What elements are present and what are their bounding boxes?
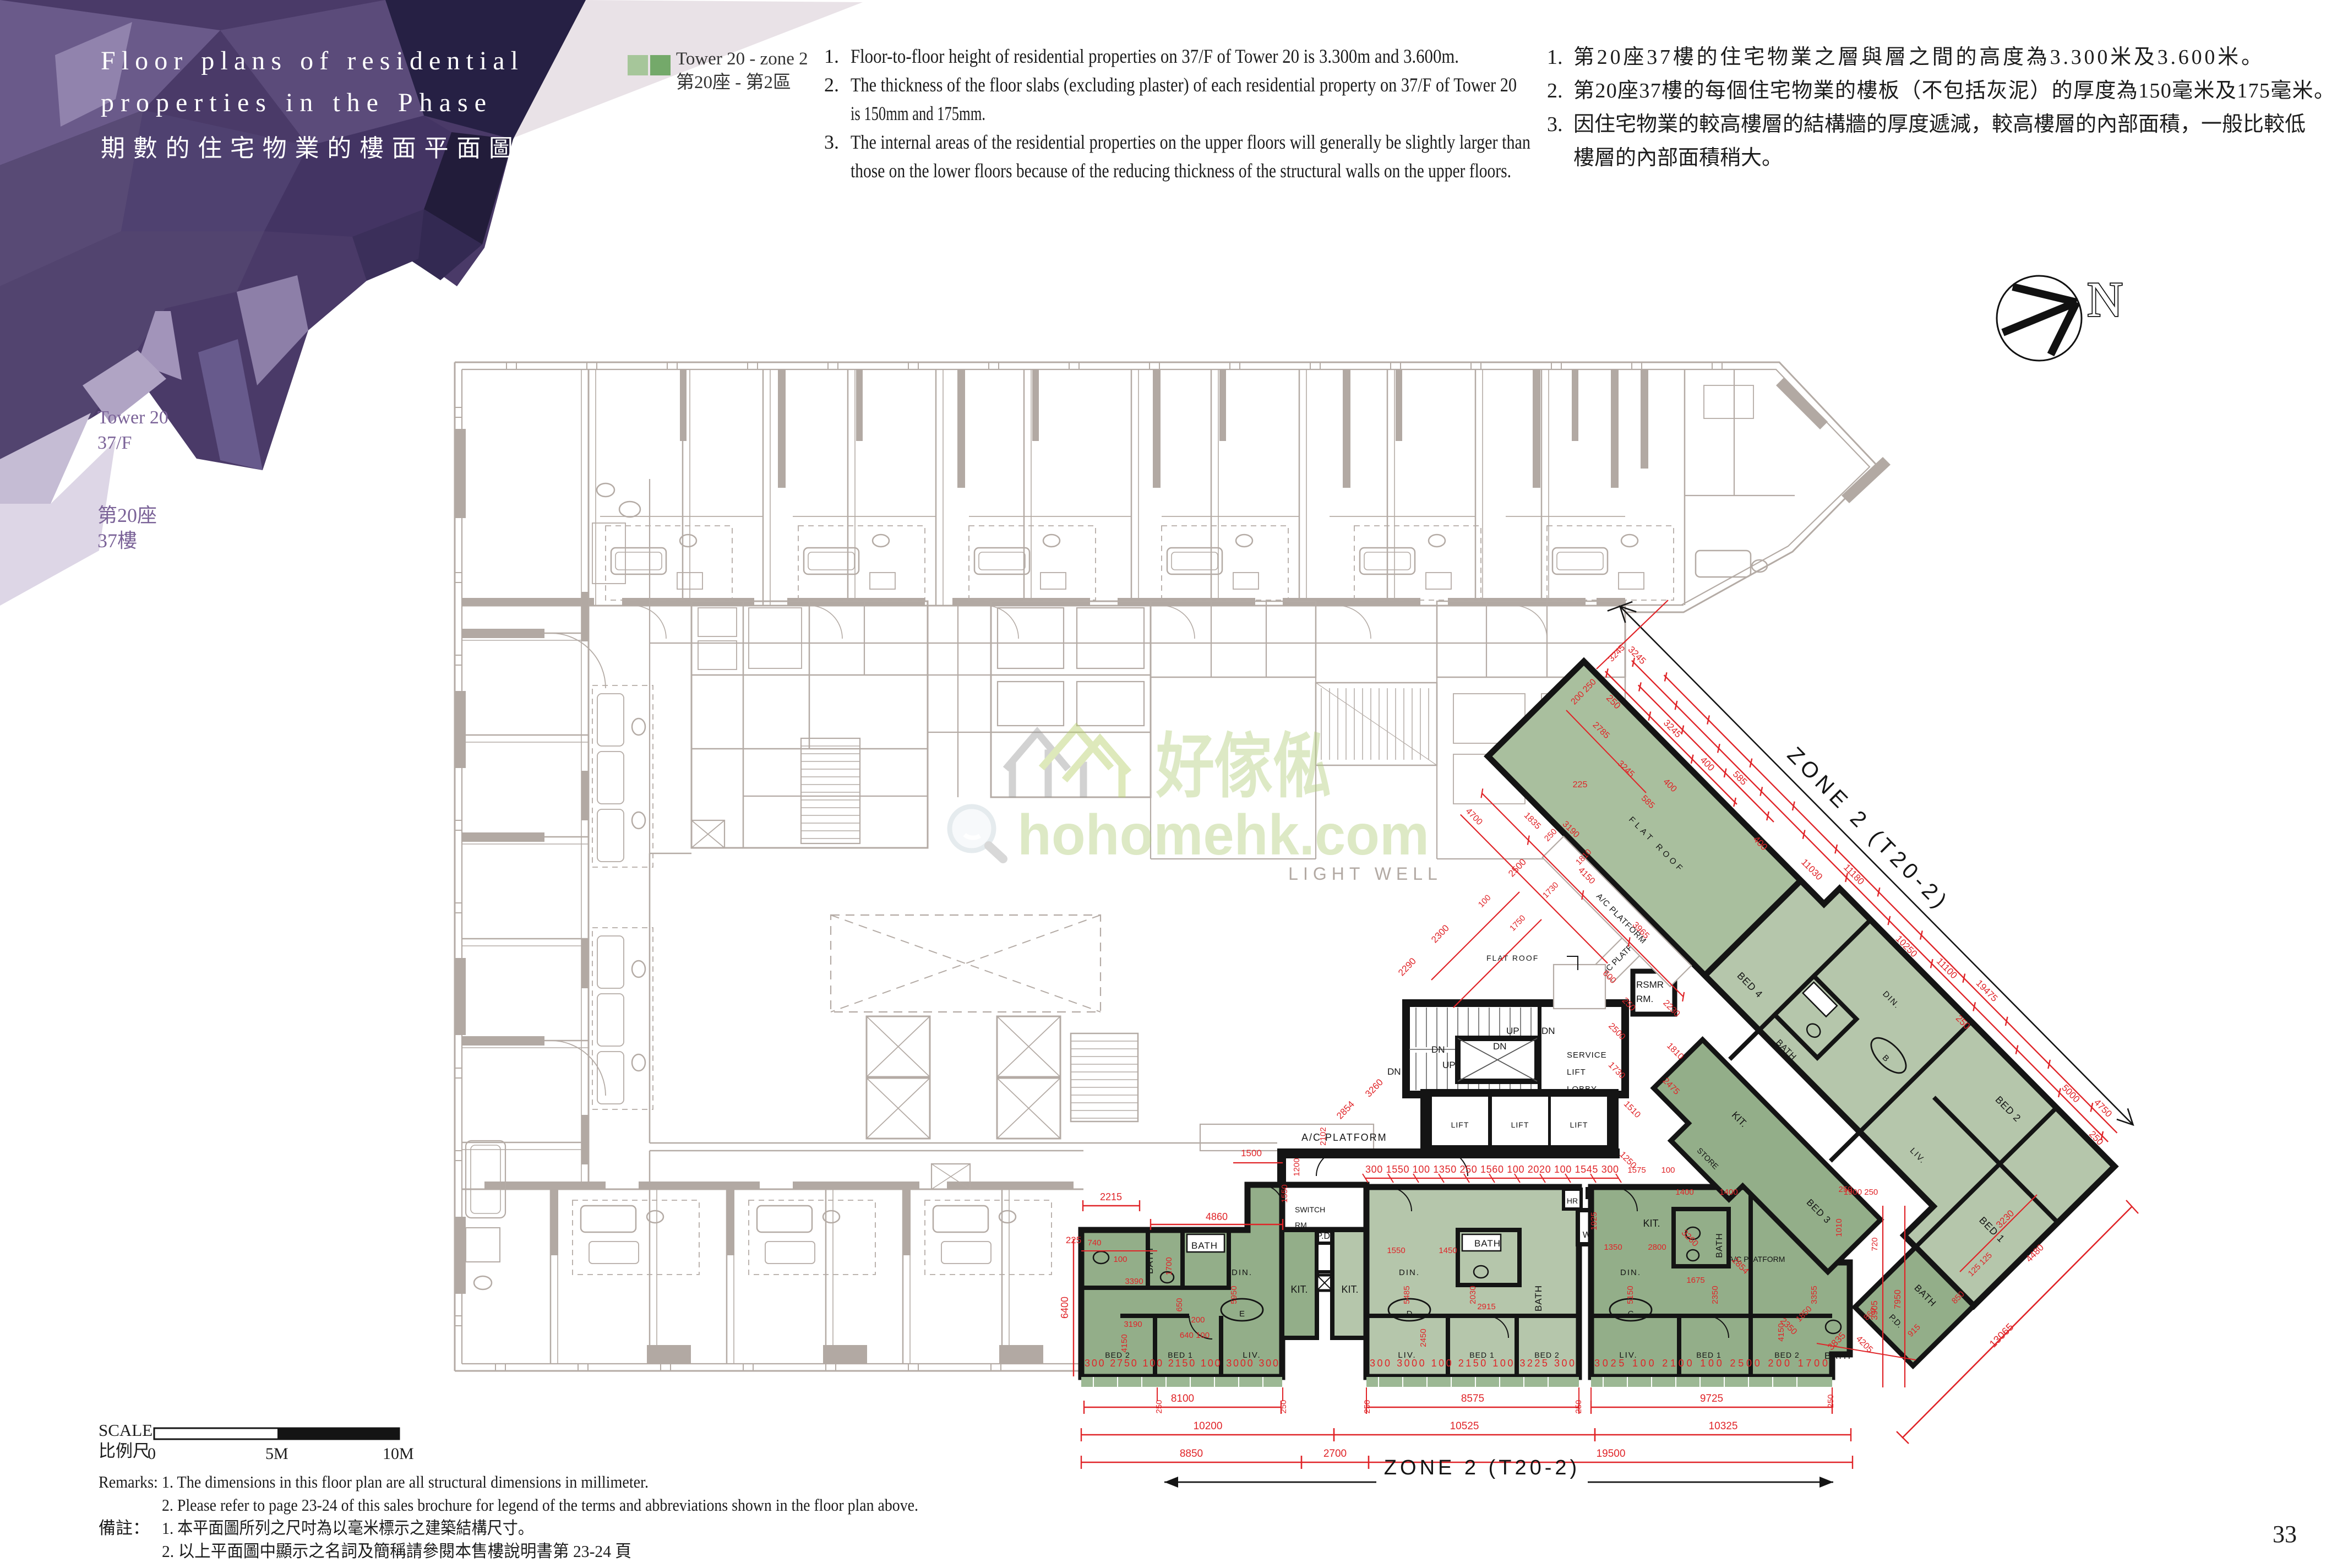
svg-text:1.: 1. (1547, 46, 1563, 69)
svg-text:19500: 19500 (1597, 1448, 1626, 1460)
svg-text:1675: 1675 (1686, 1276, 1704, 1285)
svg-text:KIT.: KIT. (1290, 1284, 1308, 1295)
svg-text:250: 250 (1826, 1394, 1835, 1408)
svg-text:200: 200 (1191, 1315, 1205, 1325)
svg-text:8100: 8100 (1171, 1393, 1194, 1404)
svg-text:5485: 5485 (1402, 1286, 1412, 1304)
svg-text:3.: 3. (1547, 113, 1563, 136)
svg-text:1730: 1730 (1541, 880, 1560, 900)
svg-text:比例尺: 比例尺 (99, 1441, 150, 1461)
svg-text:3245: 3245 (1626, 644, 1648, 666)
svg-text:DIN.: DIN. (1399, 1268, 1420, 1277)
svg-text:樓層的內部面積稍大。: 樓層的內部面積稍大。 (1573, 146, 1783, 170)
svg-text:The internal areas of the resi: The internal areas of the residential pr… (851, 131, 1530, 153)
svg-text:1700: 1700 (1164, 1257, 1174, 1275)
svg-text:300 1550 100 1350 250 1560 100: 300 1550 100 1350 250 1560 100 2020 100 … (1365, 1164, 1619, 1175)
svg-text:2450: 2450 (1419, 1329, 1428, 1347)
svg-text:E: E (1239, 1309, 1245, 1319)
svg-text:1400: 1400 (1719, 1188, 1737, 1197)
svg-text:HR: HR (1567, 1196, 1578, 1205)
svg-text:第20座37樓的每個住宅物業的樓板（不包括灰泥）的厚度為15: 第20座37樓的每個住宅物業的樓板（不包括灰泥）的厚度為150毫米及175毫米。 (1573, 79, 2335, 102)
svg-text:5150: 5150 (1626, 1286, 1635, 1304)
svg-text:250: 250 (1279, 1400, 1288, 1413)
svg-text:LIFT: LIFT (1567, 1068, 1586, 1077)
svg-text:3355: 3355 (1810, 1286, 1819, 1304)
svg-text:KIT.: KIT. (1643, 1218, 1660, 1229)
svg-text:5M: 5M (265, 1445, 288, 1463)
svg-text:3190: 3190 (1124, 1320, 1142, 1329)
svg-text:250: 250 (1363, 1400, 1372, 1413)
svg-text:those on the lower floors beca: those on the lower floors because of the… (851, 160, 1511, 182)
svg-text:1550: 1550 (1280, 1184, 1289, 1202)
svg-text:第20座: 第20座 (97, 504, 157, 526)
svg-text:6400: 6400 (1059, 1297, 1070, 1319)
svg-text:100: 100 (1477, 893, 1493, 910)
svg-text:1500: 1500 (1241, 1148, 1262, 1158)
svg-text:9725: 9725 (1700, 1393, 1723, 1404)
svg-text:1575: 1575 (1627, 1166, 1646, 1175)
svg-text:100: 100 (1661, 1166, 1675, 1175)
svg-text:1750: 1750 (1508, 913, 1527, 933)
svg-text:3245: 3245 (1606, 643, 1627, 663)
svg-text:3245: 3245 (1661, 717, 1684, 739)
svg-text:2700: 2700 (1323, 1448, 1347, 1460)
svg-text:4150: 4150 (1120, 1334, 1129, 1352)
svg-text:100: 100 (1113, 1255, 1127, 1264)
svg-text:4860: 4860 (1206, 1211, 1228, 1222)
svg-text:5000: 5000 (2060, 1082, 2082, 1104)
svg-text:10525: 10525 (1450, 1420, 1479, 1432)
svg-text:因住宅物業的較高樓層的結構牆的厚度遞減，較高樓層的內部面積，: 因住宅物業的較高樓層的結構牆的厚度遞減，較高樓層的內部面積，一般比較低 (1573, 113, 2306, 136)
svg-text:1835: 1835 (1522, 810, 1543, 831)
svg-text:2290: 2290 (1396, 956, 1418, 978)
svg-text:FLAT ROOF: FLAT ROOF (1486, 954, 1539, 962)
svg-text:1350: 1350 (1604, 1243, 1622, 1252)
svg-text:BATH: BATH (1715, 1233, 1724, 1257)
svg-text:SERVICE: SERVICE (1567, 1050, 1607, 1060)
svg-text:10325: 10325 (1709, 1420, 1738, 1432)
svg-text:N: N (2087, 273, 2123, 327)
svg-text:2300: 2300 (1429, 923, 1451, 945)
svg-text:1400: 1400 (1675, 1188, 1693, 1197)
svg-text:C: C (1628, 1309, 1634, 1319)
svg-text:3025 100 2100 100 2500 200 170: 3025 100 2100 100 2500 200 1700 (1594, 1358, 1828, 1369)
svg-text:740: 740 (1087, 1238, 1101, 1248)
svg-text:2800: 2800 (1648, 1243, 1666, 1252)
svg-text:10200: 10200 (1194, 1420, 1223, 1432)
svg-text:3390: 3390 (1125, 1277, 1143, 1286)
svg-text:備註：: 備註： (99, 1518, 150, 1538)
svg-text:37樓: 37樓 (97, 530, 137, 552)
svg-text:585: 585 (1731, 769, 1749, 787)
svg-text:BATH: BATH (1533, 1285, 1544, 1311)
svg-text:LIFT: LIFT (1570, 1120, 1588, 1129)
svg-text:第20座 - 第2區: 第20座 - 第2區 (676, 72, 791, 92)
svg-text:650: 650 (1175, 1298, 1184, 1311)
svg-text:11100: 11100 (1935, 956, 1959, 981)
svg-text:8575: 8575 (1461, 1393, 1484, 1404)
svg-text:1.: 1. (824, 45, 839, 67)
svg-text:2915: 2915 (1477, 1302, 1495, 1311)
svg-text:2350: 2350 (1710, 1286, 1720, 1304)
svg-text:RSMR: RSMR (1636, 979, 1664, 990)
svg-text:Floor-to-floor height of resid: Floor-to-floor height of residential pro… (851, 45, 1459, 67)
svg-text:640 100: 640 100 (1180, 1331, 1210, 1340)
svg-text:13065: 13065 (1987, 1321, 2016, 1350)
svg-text:D: D (1407, 1309, 1413, 1319)
svg-text:Floor plans of residential: Floor plans of residential (101, 46, 518, 75)
svg-text:LIFT: LIFT (1451, 1120, 1469, 1129)
svg-text:2854: 2854 (1334, 1099, 1357, 1121)
svg-text:DIN.: DIN. (1232, 1268, 1252, 1277)
svg-text:UP: UP (1442, 1060, 1456, 1070)
svg-text:hohomehk.com: hohomehk.com (1017, 803, 1429, 867)
svg-text:好傢俬: 好傢俬 (1156, 727, 1331, 806)
svg-text:3260: 3260 (1363, 1077, 1385, 1099)
svg-text:BATH: BATH (1474, 1238, 1501, 1249)
svg-text:400: 400 (1698, 755, 1716, 774)
svg-text:Tower 20: Tower 20 (97, 407, 168, 428)
svg-text:ZONE 2 (T20-2): ZONE 2 (T20-2) (1384, 1456, 1580, 1479)
svg-text:DIN.: DIN. (1620, 1268, 1641, 1277)
svg-text:250: 250 (1154, 1400, 1164, 1413)
svg-text:Remarks: 1. The dimensions in: Remarks: 1. The dimensions in this floor… (99, 1472, 649, 1491)
svg-text:4750: 4750 (2092, 1097, 2114, 1119)
svg-text:2.: 2. (1547, 79, 1563, 102)
svg-text:2500: 2500 (1506, 857, 1528, 879)
svg-text:1510: 1510 (1622, 1099, 1642, 1120)
svg-text:2102: 2102 (1319, 1127, 1328, 1145)
svg-text:225: 225 (1573, 780, 1588, 790)
svg-text:RM.: RM. (1636, 994, 1653, 1004)
svg-text:BATH: BATH (1191, 1240, 1218, 1251)
svg-text:11030: 11030 (1799, 857, 1824, 882)
svg-text:7950: 7950 (1893, 1289, 1903, 1309)
svg-text:BATH: BATH (1824, 1351, 1851, 1361)
svg-text:1450: 1450 (1439, 1246, 1457, 1255)
svg-text:KIT.: KIT. (1341, 1284, 1358, 1295)
svg-text:1550: 1550 (1387, 1246, 1405, 1255)
svg-text:37/F: 37/F (97, 433, 132, 453)
svg-text:250: 250 (1574, 1400, 1583, 1413)
svg-text:225: 225 (1066, 1235, 1081, 1245)
svg-text:Tower 20 - zone 2: Tower 20 - zone 2 (676, 49, 808, 69)
svg-text:DN: DN (1493, 1041, 1507, 1052)
svg-text:2.: 2. (824, 74, 839, 96)
svg-text:SCALE: SCALE (99, 1420, 152, 1440)
svg-text:1. 本平面圖所列之尺吋為以毫米標示之建築結構尺寸。: 1. 本平面圖所列之尺吋為以毫米標示之建築結構尺寸。 (162, 1518, 533, 1538)
svg-text:5950: 5950 (1229, 1286, 1239, 1304)
svg-text:33: 33 (2273, 1521, 2297, 1548)
svg-text:10M: 10M (383, 1445, 414, 1463)
svg-text:1010: 1010 (1834, 1218, 1844, 1237)
svg-text:DN: DN (1431, 1044, 1445, 1055)
svg-text:1900 250: 1900 250 (1844, 1188, 1878, 1197)
svg-text:is 150mm and 175mm.: is 150mm and 175mm. (851, 102, 985, 124)
svg-text:LIFT: LIFT (1511, 1120, 1529, 1129)
svg-text:720: 720 (1870, 1237, 1880, 1251)
svg-text:4150: 4150 (1777, 1323, 1786, 1341)
svg-text:3.: 3. (824, 131, 839, 153)
svg-text:DN: DN (1387, 1066, 1401, 1077)
svg-text:8850: 8850 (1180, 1448, 1203, 1460)
svg-text:1200: 1200 (1292, 1158, 1301, 1176)
svg-text:1925: 1925 (1589, 1212, 1599, 1230)
svg-text:DN: DN (1541, 1026, 1555, 1036)
svg-text:4700: 4700 (1464, 807, 1484, 827)
svg-text:A/C PLATFORM: A/C PLATFORM (1301, 1132, 1387, 1143)
svg-text:2030: 2030 (1468, 1286, 1478, 1304)
svg-text:11180: 11180 (1842, 862, 1866, 887)
svg-text:19475: 19475 (1974, 978, 2000, 1004)
svg-text:BATH: BATH (1145, 1248, 1155, 1274)
svg-text:第20座37樓的住宅物業之層與層之間的高度為3.300米及3: 第20座37樓的住宅物業之層與層之間的高度為3.300米及3.600米。 (1573, 46, 2262, 69)
svg-text:0: 0 (148, 1445, 156, 1463)
svg-text:SWITCH: SWITCH (1295, 1205, 1325, 1214)
svg-text:2215: 2215 (1100, 1191, 1122, 1202)
svg-text:2. Please refer to page 23-24: 2. Please refer to page 23-24 of this sa… (162, 1495, 918, 1515)
svg-text:2. 以上平面圖中顯示之名詞及簡稱請參閱本售樓說明書第 23: 2. 以上平面圖中顯示之名詞及簡稱請參閱本售樓說明書第 23-24 頁 (162, 1542, 631, 1561)
svg-text:UP: UP (1506, 1026, 1519, 1036)
svg-text:The thickness of the floor sla: The thickness of the floor slabs (exclud… (851, 74, 1517, 96)
